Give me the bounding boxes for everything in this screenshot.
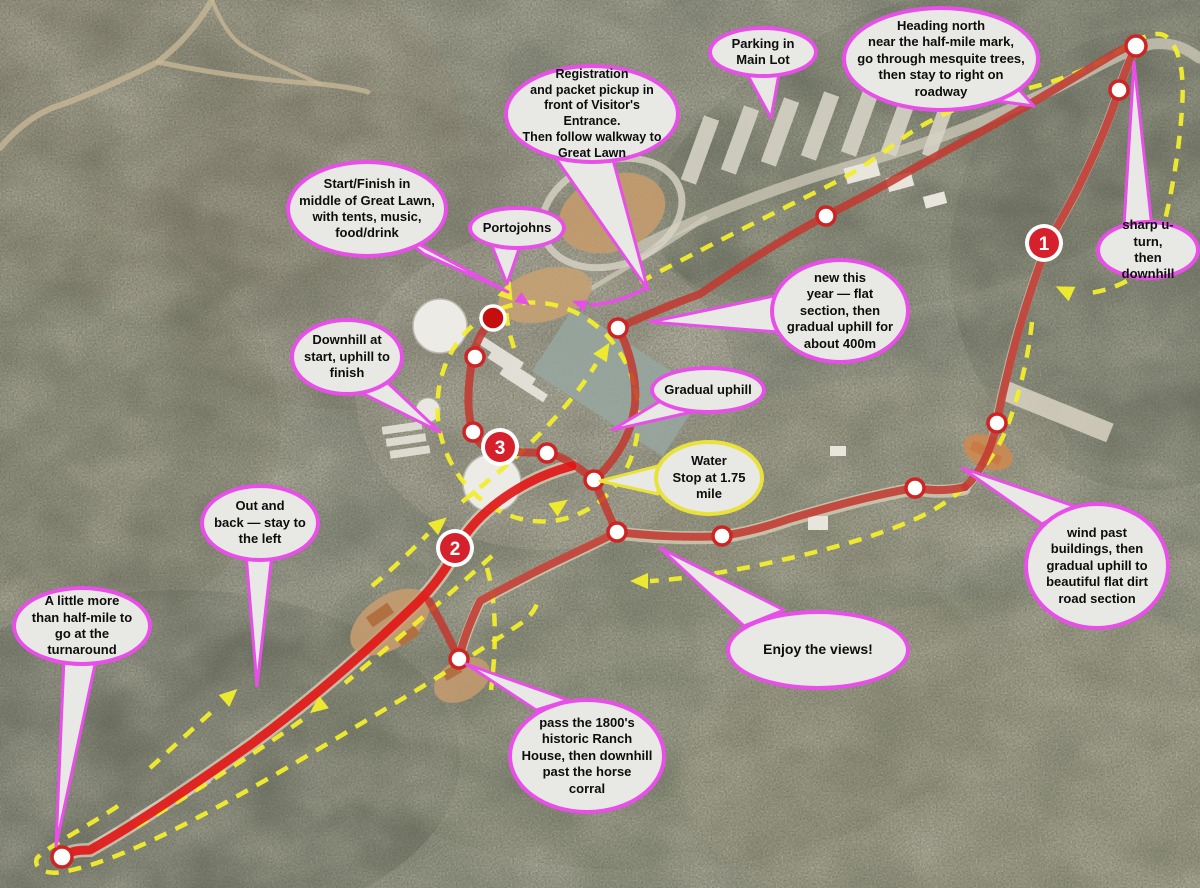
small-building [830,446,846,456]
callout-start-finish: Start/Finish in middle of Great Lawn, wi… [286,160,448,258]
mile-marker-3-label: 3 [495,438,506,459]
small-building [808,516,828,530]
callout-half-mile-to-go: A little more than half-mile to go at th… [12,586,152,666]
callout-enjoy-views: Enjoy the views! [726,610,910,690]
mile-marker-3: 3 [481,428,519,466]
turnaround-point [52,847,72,867]
mile-marker-1: 1 [1025,224,1063,262]
callout-ranch-house: pass the 1800's historic Ranch House, th… [508,698,666,814]
u-turn-point [1126,36,1146,56]
callout-new-this-year: new this year — flat section, then gradu… [770,258,910,364]
mile-marker-2: 2 [436,529,474,567]
callout-out-and-back: Out and back — stay to the left [200,484,320,562]
race-course-map: 1 2 3 Heading north near the half-mile m… [0,0,1200,888]
callout-parking: Parking in Main Lot [708,26,818,78]
callout-wind-past-buildings: wind past buildings, then gradual uphill… [1024,502,1170,630]
dome-north [413,299,467,353]
start-finish-dot [481,306,505,330]
callout-downhill-at-start: Downhill at start, uphill to finish [290,318,404,396]
callout-heading-north: Heading north near the half-mile mark, g… [842,6,1040,112]
callout-portojohns: Portojohns [468,206,566,250]
callout-sharp-u-turn: sharp u-turn, then downhill [1096,220,1200,280]
callout-registration: Registration and packet pickup in front … [504,64,680,164]
callout-gradual-uphill: Gradual uphill [650,366,766,414]
mile-marker-2-label: 2 [450,539,461,560]
callout-water-stop: Water Stop at 1.75 mile [654,440,764,516]
mile-marker-1-label: 1 [1039,234,1050,255]
